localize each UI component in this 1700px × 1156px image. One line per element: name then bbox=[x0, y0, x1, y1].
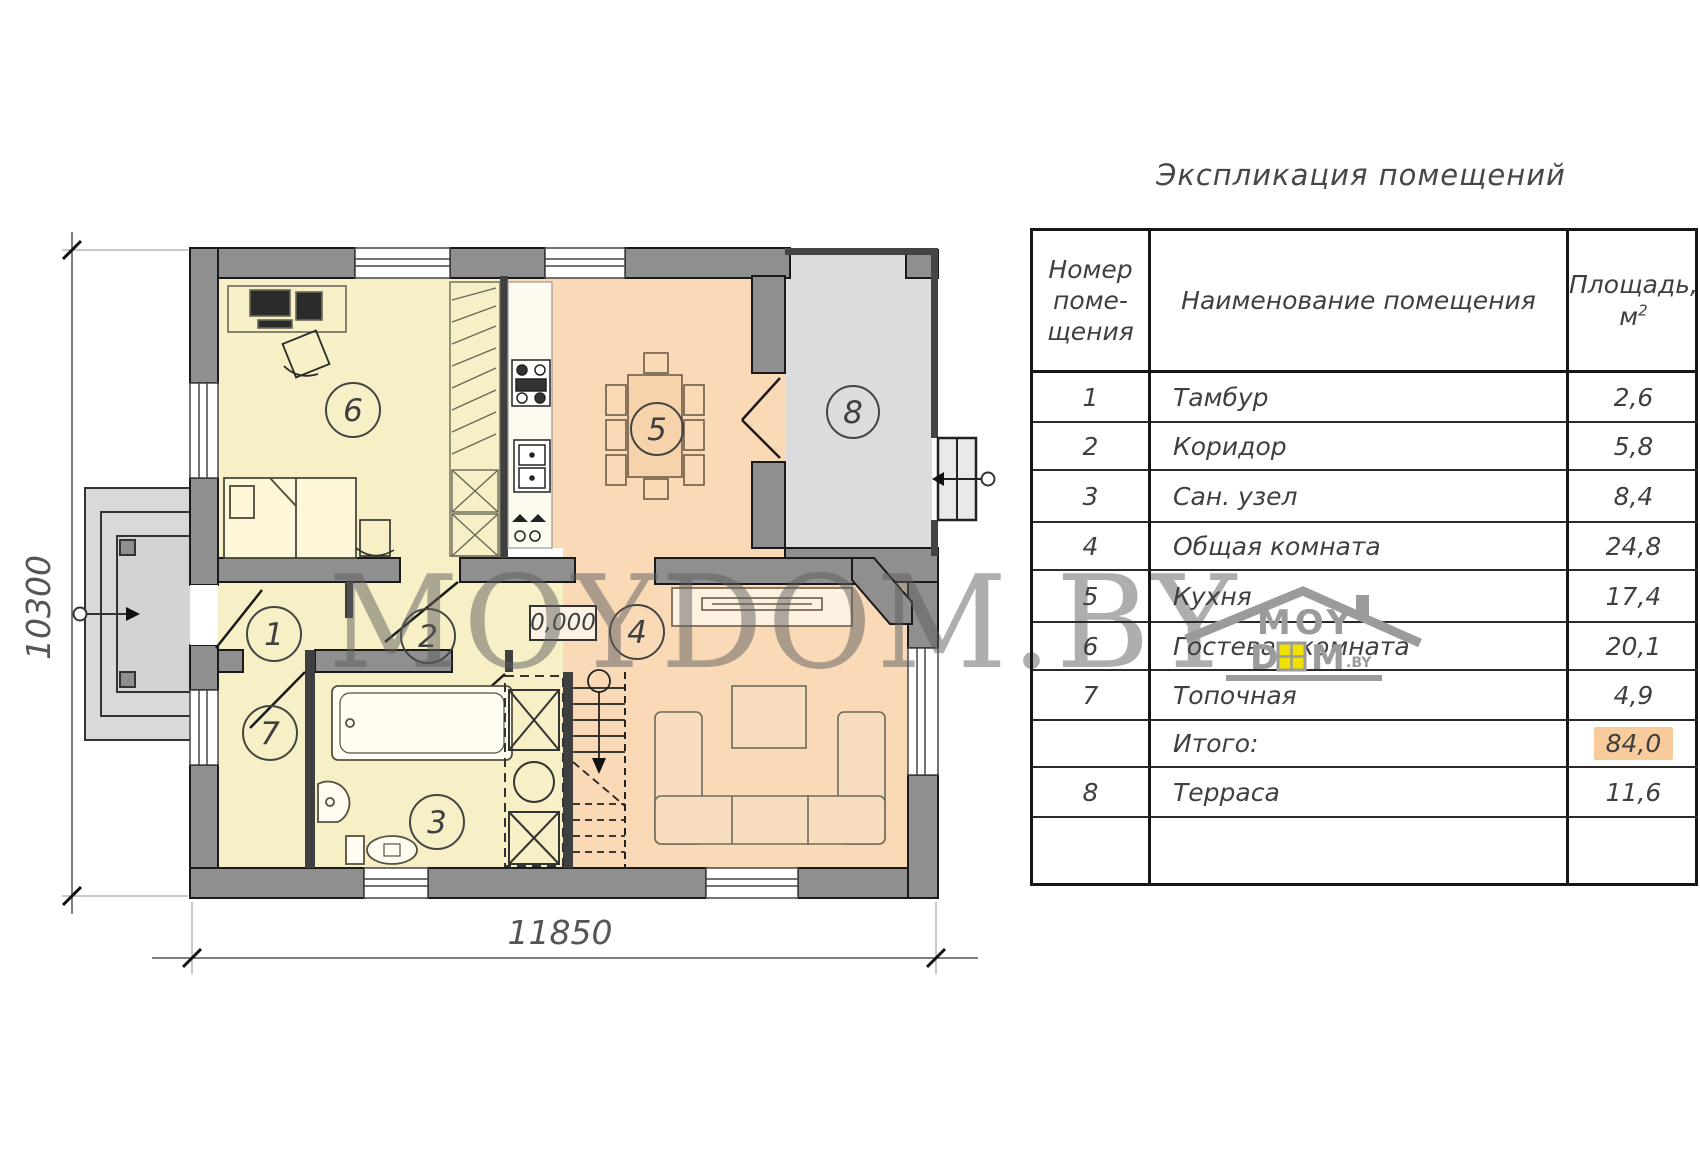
kitchen-counter bbox=[508, 282, 552, 548]
header-room-name: Наименование помещения bbox=[1151, 231, 1569, 373]
row-number: 6 bbox=[1033, 623, 1151, 671]
row-name: Терраса bbox=[1151, 768, 1569, 818]
row-area: 11,6 bbox=[1569, 768, 1698, 818]
row-area bbox=[1569, 818, 1698, 883]
dimension-width: 11850 bbox=[152, 902, 978, 974]
moydom-logo: MOY D M .BY bbox=[1178, 585, 1428, 685]
floor-plan: 0,000 1 2 3 4 5 6 7 8 10300 11850 bbox=[0, 0, 1010, 1000]
logo-window-icon bbox=[1278, 643, 1305, 670]
row-number: 5 bbox=[1033, 571, 1151, 623]
svg-text:D: D bbox=[1250, 638, 1278, 678]
svg-text:10300: 10300 bbox=[19, 555, 58, 660]
header-room-number: Номер поме- щения bbox=[1033, 231, 1151, 373]
header-area: Площадь, м2 bbox=[1569, 231, 1698, 373]
svg-text:5: 5 bbox=[647, 412, 667, 448]
row-number: 3 bbox=[1033, 471, 1151, 523]
terrace-entry-steps bbox=[932, 438, 995, 520]
row-number: 7 bbox=[1033, 671, 1151, 721]
row-area: 24,8 bbox=[1569, 523, 1698, 571]
row-number bbox=[1033, 721, 1151, 768]
row-area: 5,8 bbox=[1569, 423, 1698, 471]
kitchen-sink-icon bbox=[514, 440, 550, 492]
table-title: Экспликация помещений bbox=[1030, 158, 1692, 192]
row-area-total: 84,0 bbox=[1569, 721, 1698, 768]
svg-text:3: 3 bbox=[427, 805, 447, 841]
row-name bbox=[1151, 818, 1569, 883]
explication-table: Номер поме- щения Наименование помещения… bbox=[1030, 228, 1698, 886]
svg-text:MOY: MOY bbox=[1257, 603, 1355, 643]
toilet-icon bbox=[346, 836, 417, 864]
row-number: 4 bbox=[1033, 523, 1151, 571]
row-number: 1 bbox=[1033, 373, 1151, 423]
row-number bbox=[1033, 818, 1151, 883]
stove-icon bbox=[512, 360, 550, 406]
row-area: 20,1 bbox=[1569, 623, 1698, 671]
row-number: 2 bbox=[1033, 423, 1151, 471]
row-area: 4,9 bbox=[1569, 671, 1698, 721]
row-area: 8,4 bbox=[1569, 471, 1698, 523]
row-name: Общая комната bbox=[1151, 523, 1569, 571]
row-name: Итого: bbox=[1151, 721, 1569, 768]
svg-text:6: 6 bbox=[343, 393, 363, 429]
row-number: 8 bbox=[1033, 768, 1151, 818]
bed-icon bbox=[224, 478, 356, 558]
row-name: Коридор bbox=[1151, 423, 1569, 471]
svg-text:M: M bbox=[1311, 638, 1345, 678]
svg-text:7: 7 bbox=[260, 716, 280, 752]
svg-text:1: 1 bbox=[264, 617, 284, 653]
svg-text:11850: 11850 bbox=[508, 913, 613, 952]
row-area: 17,4 bbox=[1569, 571, 1698, 623]
svg-text:.BY: .BY bbox=[1346, 655, 1372, 671]
row-name: Тамбур bbox=[1151, 373, 1569, 423]
row-area: 2,6 bbox=[1569, 373, 1698, 423]
svg-text:8: 8 bbox=[843, 395, 863, 431]
row-name: Сан. узел bbox=[1151, 471, 1569, 523]
